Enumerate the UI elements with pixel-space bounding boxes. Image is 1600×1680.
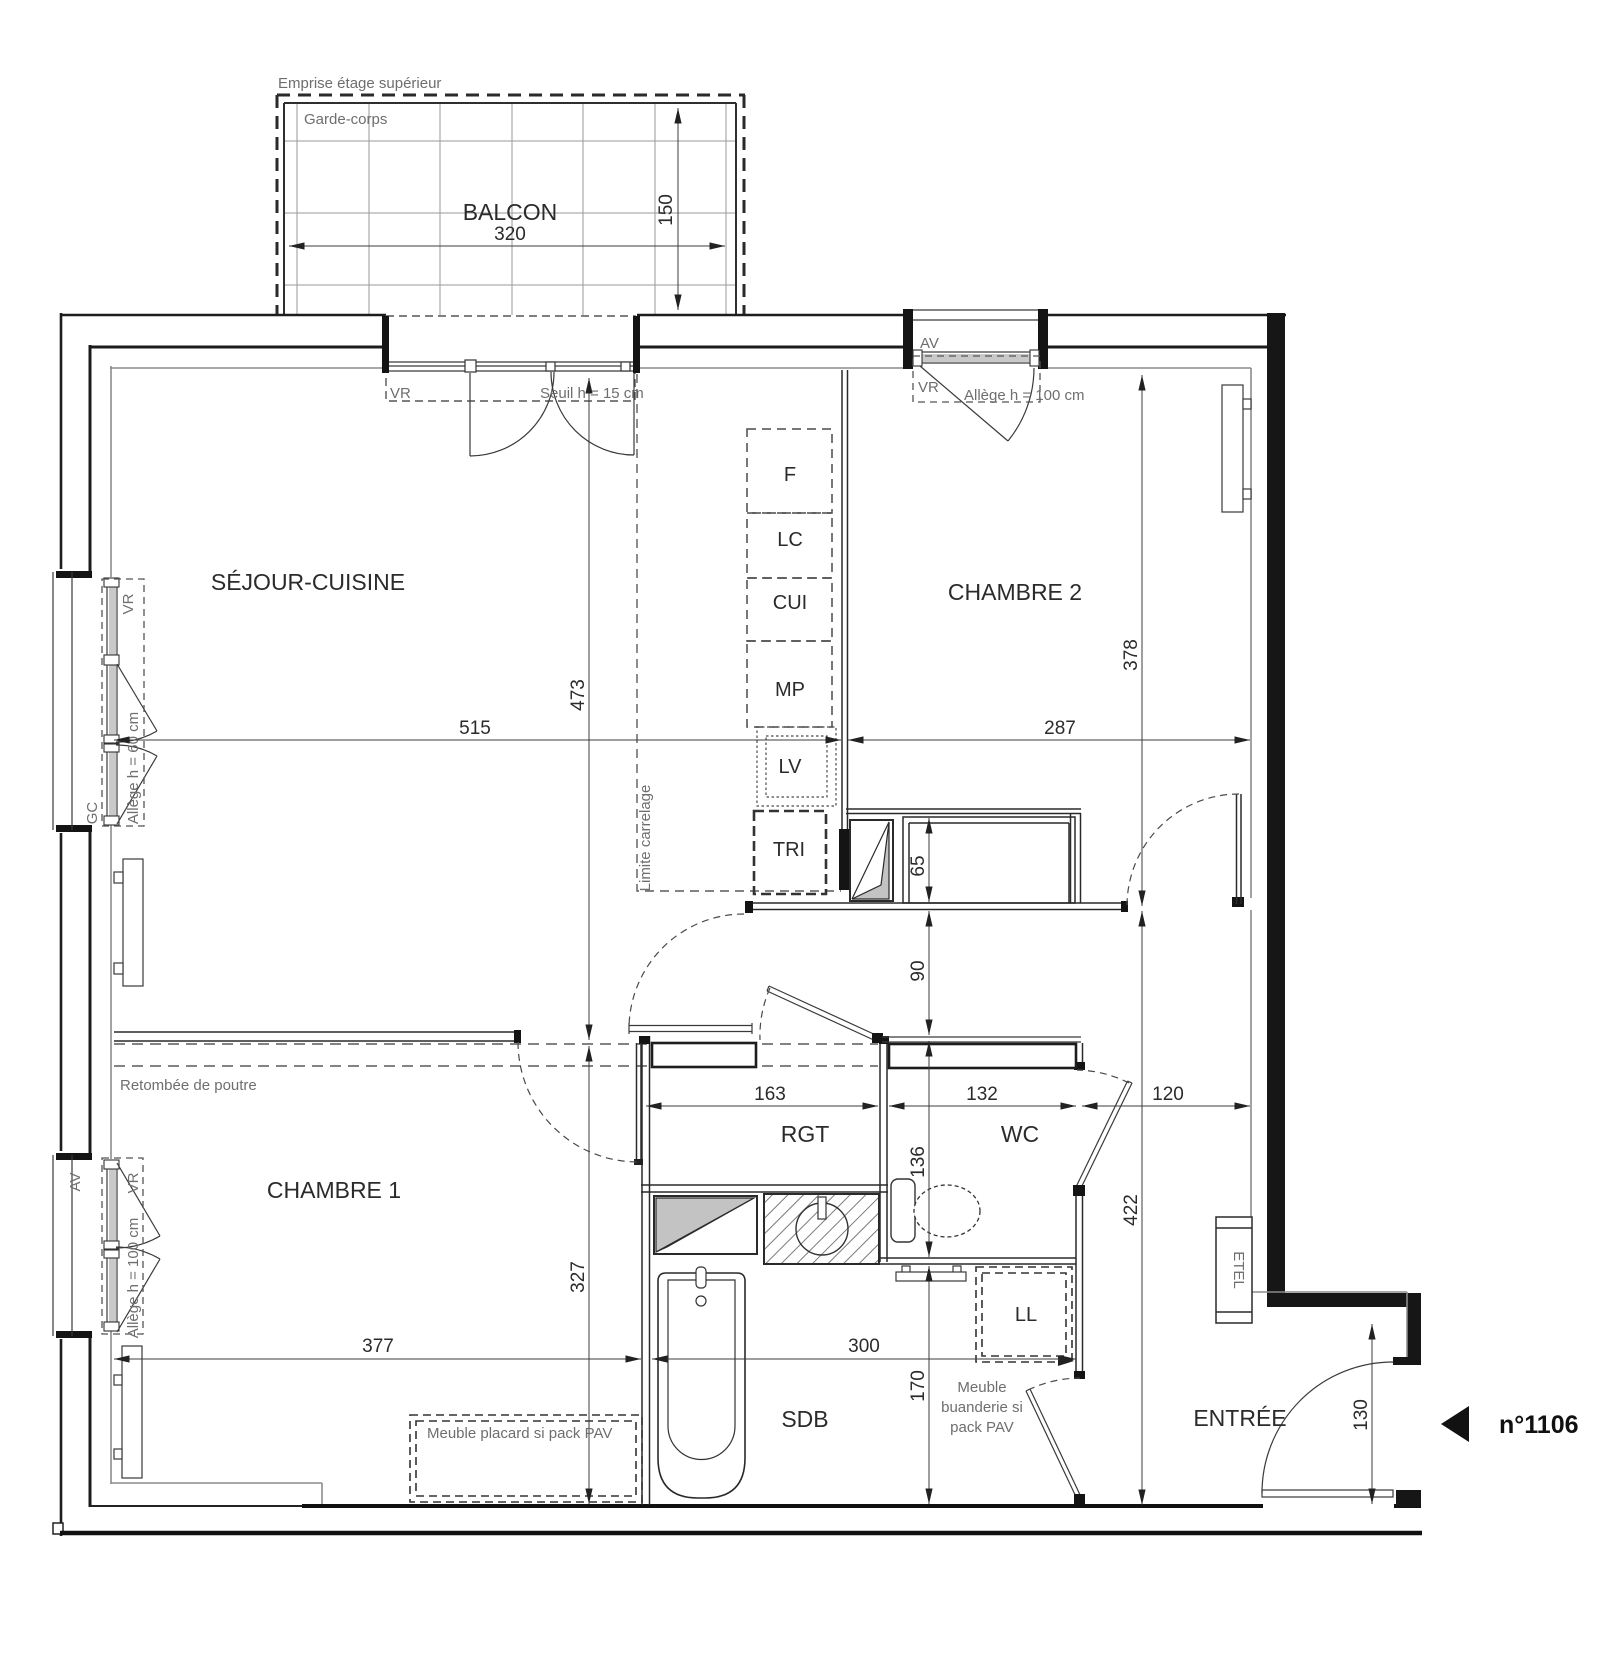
svg-text:CHAMBRE 1: CHAMBRE 1 — [267, 1177, 401, 1203]
svg-text:Allège h = 100 cm: Allège h = 100 cm — [125, 1218, 142, 1339]
svg-text:AV: AV — [67, 1173, 84, 1192]
svg-text:327: 327 — [568, 1261, 589, 1293]
svg-text:VR: VR — [125, 1172, 142, 1193]
svg-text:300: 300 — [848, 1336, 880, 1357]
svg-text:buanderie si: buanderie si — [941, 1399, 1023, 1416]
svg-text:Retombée de poutre: Retombée de poutre — [120, 1077, 257, 1094]
svg-text:Meuble placard si pack PAV: Meuble placard si pack PAV — [427, 1425, 612, 1442]
svg-text:F: F — [784, 464, 796, 486]
svg-text:Allège h = 60 cm: Allège h = 60 cm — [125, 712, 142, 824]
svg-text:LC: LC — [777, 529, 803, 551]
svg-text:Emprise étage supérieur: Emprise étage supérieur — [278, 75, 441, 92]
svg-text:CHAMBRE 2: CHAMBRE 2 — [948, 579, 1082, 605]
svg-text:130: 130 — [1351, 1399, 1372, 1431]
svg-text:90: 90 — [908, 960, 929, 981]
svg-text:AV: AV — [920, 335, 939, 352]
svg-text:VR: VR — [120, 593, 137, 614]
svg-text:Limite carrelage: Limite carrelage — [637, 785, 654, 892]
svg-text:ENTRÉE: ENTRÉE — [1193, 1405, 1286, 1431]
svg-text:RGT: RGT — [781, 1121, 830, 1147]
svg-text:Meuble: Meuble — [957, 1379, 1006, 1396]
svg-text:Seuil h = 15 cm: Seuil h = 15 cm — [540, 385, 644, 402]
svg-text:LL: LL — [1015, 1304, 1037, 1326]
svg-text:LV: LV — [779, 756, 803, 778]
svg-text:473: 473 — [568, 679, 589, 711]
svg-text:422: 422 — [1121, 1194, 1142, 1226]
svg-text:CUI: CUI — [773, 592, 807, 614]
svg-text:170: 170 — [908, 1370, 929, 1402]
svg-text:515: 515 — [459, 718, 491, 739]
svg-text:377: 377 — [362, 1336, 394, 1357]
svg-text:GC: GC — [84, 802, 101, 825]
svg-text:378: 378 — [1121, 639, 1142, 671]
svg-text:WC: WC — [1001, 1121, 1039, 1147]
svg-text:SÉJOUR-CUISINE: SÉJOUR-CUISINE — [211, 569, 405, 595]
svg-text:163: 163 — [754, 1084, 786, 1105]
svg-text:Allège h = 100 cm: Allège h = 100 cm — [964, 387, 1085, 404]
svg-text:132: 132 — [966, 1084, 998, 1105]
svg-text:120: 120 — [1152, 1084, 1184, 1105]
svg-text:ETEL: ETEL — [1230, 1251, 1247, 1289]
svg-text:VR: VR — [918, 379, 939, 396]
svg-text:pack PAV: pack PAV — [950, 1419, 1014, 1436]
svg-text:VR: VR — [390, 385, 411, 402]
svg-text:150: 150 — [656, 194, 677, 226]
svg-text:320: 320 — [494, 224, 526, 245]
svg-text:65: 65 — [908, 855, 929, 876]
svg-text:TRI: TRI — [773, 839, 805, 861]
svg-text:n°1106: n°1106 — [1499, 1411, 1579, 1439]
svg-text:SDB: SDB — [781, 1406, 828, 1432]
svg-text:MP: MP — [775, 679, 805, 701]
svg-text:Garde-corps: Garde-corps — [304, 111, 387, 128]
svg-text:BALCON: BALCON — [463, 199, 558, 225]
svg-text:136: 136 — [908, 1146, 929, 1178]
svg-text:287: 287 — [1044, 718, 1076, 739]
